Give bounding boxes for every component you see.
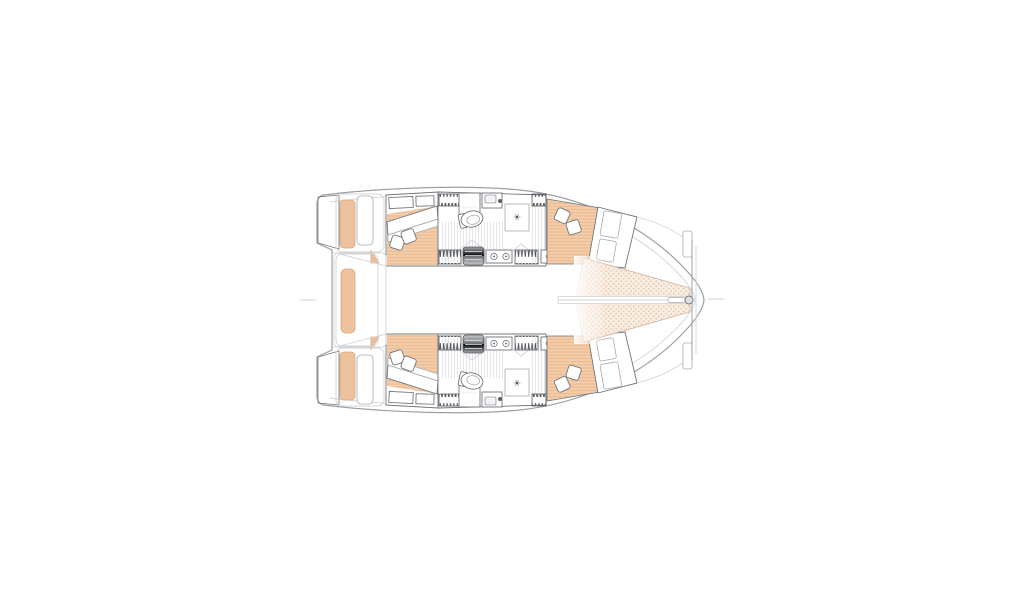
- faucet: [498, 199, 502, 203]
- companionway-stairs: [463, 247, 484, 265]
- center-bench-cushion: [341, 269, 355, 333]
- louvered-locker: [515, 250, 538, 264]
- floor-plan-page: [0, 0, 1024, 600]
- port-head: [438, 192, 565, 266]
- floor-plan-canvas: [0, 0, 1024, 600]
- bow-roller: [668, 298, 685, 303]
- swim-platform: [357, 196, 373, 245]
- mattress: [600, 211, 622, 239]
- shelf: [389, 196, 414, 208]
- catamaran-deck-plan: [300, 187, 724, 412]
- louvered-locker: [439, 194, 460, 206]
- port-aft-cabin: [386, 192, 438, 266]
- louvered-locker: [532, 194, 546, 206]
- louvered-locker: [439, 250, 461, 264]
- trampoline-fade: [574, 256, 608, 298]
- twin-burners: [486, 250, 512, 263]
- transom-cushion: [340, 200, 355, 248]
- basin: [485, 195, 496, 203]
- bow-fitting: [685, 296, 693, 304]
- crossbeam-post: [683, 231, 692, 257]
- shelf: [416, 196, 434, 207]
